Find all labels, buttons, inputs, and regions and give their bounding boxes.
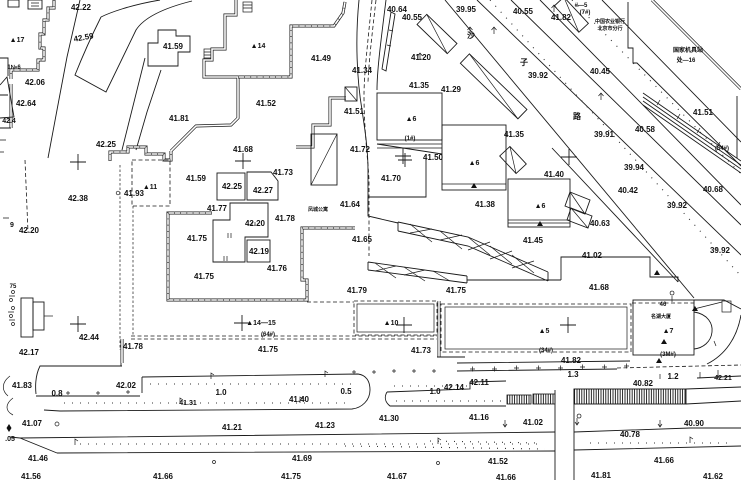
svg-text:北京市分行: 北京市分行 [597,25,622,32]
svg-text:39.91: 39.91 [594,130,615,139]
svg-text:1.3: 1.3 [567,370,579,379]
svg-text:41.79: 41.79 [347,286,368,295]
svg-text:▲14—15: ▲14—15 [246,320,276,327]
svg-text:41.66: 41.66 [654,456,675,465]
svg-text:40.78: 40.78 [620,430,641,439]
svg-text:1.0: 1.0 [215,388,227,397]
svg-text:41.46: 41.46 [28,454,49,463]
svg-text:41.75: 41.75 [281,472,302,480]
svg-text:名湖大厦: 名湖大厦 [651,313,672,320]
svg-text:41.52: 41.52 [488,457,509,466]
svg-text:41.35: 41.35 [409,81,430,90]
svg-text:41.83: 41.83 [12,381,33,390]
svg-text:路: 路 [573,111,582,121]
svg-text:(1#): (1#) [405,136,416,142]
svg-text:40.58: 40.58 [635,125,656,134]
svg-text:41.75: 41.75 [446,286,467,295]
svg-text:41.69: 41.69 [292,454,313,463]
svg-text:41.68: 41.68 [233,145,254,154]
svg-text:40.68: 40.68 [703,185,724,194]
svg-text:41.49: 41.49 [311,54,332,63]
svg-text:▲6: ▲6 [406,116,417,123]
svg-text:国家机具站: 国家机具站 [673,46,703,54]
svg-text:41.72: 41.72 [350,145,371,154]
svg-text:39.92: 39.92 [710,246,731,255]
svg-text:40.55: 40.55 [402,13,423,22]
svg-text:1.0: 1.0 [429,387,441,396]
svg-text:39.95: 39.95 [456,5,477,14]
svg-text:41.81: 41.81 [591,471,612,480]
svg-text:▲6: ▲6 [469,160,480,167]
svg-text:▲6: ▲6 [535,203,546,210]
svg-text:41.40: 41.40 [544,170,565,179]
svg-text:41.75: 41.75 [187,234,208,243]
svg-text:42.38: 42.38 [68,194,89,203]
svg-text:40.90: 40.90 [684,419,705,428]
svg-text:41.31: 41.31 [179,400,197,407]
svg-text:41.16: 41.16 [469,413,490,422]
svg-text:41.23: 41.23 [315,421,336,430]
svg-text:39.92: 39.92 [528,71,549,80]
svg-text:40.55: 40.55 [513,7,534,16]
svg-text:.05: .05 [5,436,15,443]
svg-text:42.64: 42.64 [16,99,37,108]
svg-text:1№6: 1№6 [7,64,21,71]
svg-text:▲14: ▲14 [251,43,266,50]
svg-text:(34#): (34#) [539,348,553,354]
svg-text:41.78: 41.78 [275,214,296,223]
svg-text:42.4: 42.4 [2,118,16,125]
svg-text:41.82: 41.82 [561,356,582,365]
svg-text:41.51: 41.51 [693,108,714,117]
svg-text:41.50: 41.50 [423,153,444,162]
svg-text:39.92: 39.92 [667,201,688,210]
svg-text:中国农业银行: 中国农业银行 [595,18,625,25]
svg-text:42.02: 42.02 [116,381,137,390]
svg-text:41.67: 41.67 [387,472,408,480]
svg-text:(64#): (64#) [261,332,275,338]
svg-text:40.42: 40.42 [618,186,639,195]
svg-text:(3M#): (3M#) [660,352,676,358]
svg-text:9: 9 [10,222,14,229]
svg-text:41.77: 41.77 [207,204,228,213]
svg-text:40.82: 40.82 [633,379,654,388]
svg-text:42.19: 42.19 [249,247,270,256]
svg-text:沙: 沙 [467,31,475,40]
svg-text:41.82: 41.82 [551,13,572,22]
svg-text:▲5: ▲5 [539,328,550,335]
svg-text:41.45: 41.45 [523,236,544,245]
svg-text:41.40: 41.40 [289,395,310,404]
svg-text:#—5: #—5 [575,3,588,9]
svg-text:41.56: 41.56 [21,472,42,480]
svg-text:40.45: 40.45 [590,67,611,76]
svg-text:42.14: 42.14 [444,383,465,392]
svg-text:41.02: 41.02 [582,251,603,260]
svg-text:41.21: 41.21 [222,423,243,432]
svg-text:▲10: ▲10 [384,320,399,327]
svg-text:(7#): (7#) [580,10,591,16]
svg-text:41.75: 41.75 [194,272,215,281]
svg-text:41.64: 41.64 [340,200,361,209]
svg-text:▲11: ▲11 [143,184,157,191]
svg-text:42.27: 42.27 [253,186,274,195]
svg-text:41.62: 41.62 [703,472,724,480]
svg-text:42.06: 42.06 [25,78,46,87]
svg-text:42.11: 42.11 [469,378,489,387]
svg-text:41.34: 41.34 [352,66,373,75]
svg-text:41.73: 41.73 [273,168,294,177]
svg-text:41.52: 41.52 [256,99,277,108]
svg-text:凤城公寓: 凤城公寓 [308,206,328,213]
svg-text:41.35: 41.35 [504,130,525,139]
svg-text:(54#): (54#) [715,146,729,152]
svg-text:▲7: ▲7 [663,328,674,335]
svg-text:41.59: 41.59 [186,174,207,183]
svg-text:41.07: 41.07 [22,419,43,428]
svg-text:41.66: 41.66 [496,473,517,480]
svg-text:39.94: 39.94 [624,163,645,172]
svg-text:41.78: 41.78 [123,342,144,351]
svg-text:41.29: 41.29 [441,85,462,94]
svg-text:41.75: 41.75 [258,345,279,354]
svg-text:42.20: 42.20 [245,219,266,228]
svg-text:41.38: 41.38 [475,200,496,209]
svg-text:42.20: 42.20 [19,226,40,235]
svg-text:42.17: 42.17 [19,348,40,357]
svg-text:41.30: 41.30 [379,414,400,423]
svg-text:41.76: 41.76 [267,264,288,273]
svg-text:42.25: 42.25 [222,182,243,191]
svg-text:处—16: 处—16 [676,56,696,64]
svg-text:42.22: 42.22 [71,3,92,12]
svg-text:41.73: 41.73 [411,346,432,355]
svg-text:46: 46 [660,302,667,308]
svg-text:41.02: 41.02 [523,418,544,427]
svg-text:41.66: 41.66 [153,472,174,480]
svg-text:41.59: 41.59 [163,42,184,51]
svg-text:子: 子 [520,58,528,67]
svg-text:41.65: 41.65 [352,235,373,244]
svg-text:▲17: ▲17 [10,37,25,44]
svg-text:41.81: 41.81 [169,114,190,123]
svg-text:41.70: 41.70 [381,174,402,183]
svg-text:40.63: 40.63 [590,219,611,228]
svg-text:1.2: 1.2 [667,372,679,381]
svg-text:42.44: 42.44 [79,333,100,342]
svg-text:41.93: 41.93 [124,189,145,198]
svg-text:41.51: 41.51 [344,107,365,116]
svg-text:0.8: 0.8 [51,389,63,398]
svg-text:41.68: 41.68 [589,283,610,292]
svg-text:75: 75 [10,284,17,290]
svg-text:42.21: 42.21 [714,375,732,382]
svg-text:42.25: 42.25 [96,140,117,149]
svg-text:0.5: 0.5 [340,387,352,396]
